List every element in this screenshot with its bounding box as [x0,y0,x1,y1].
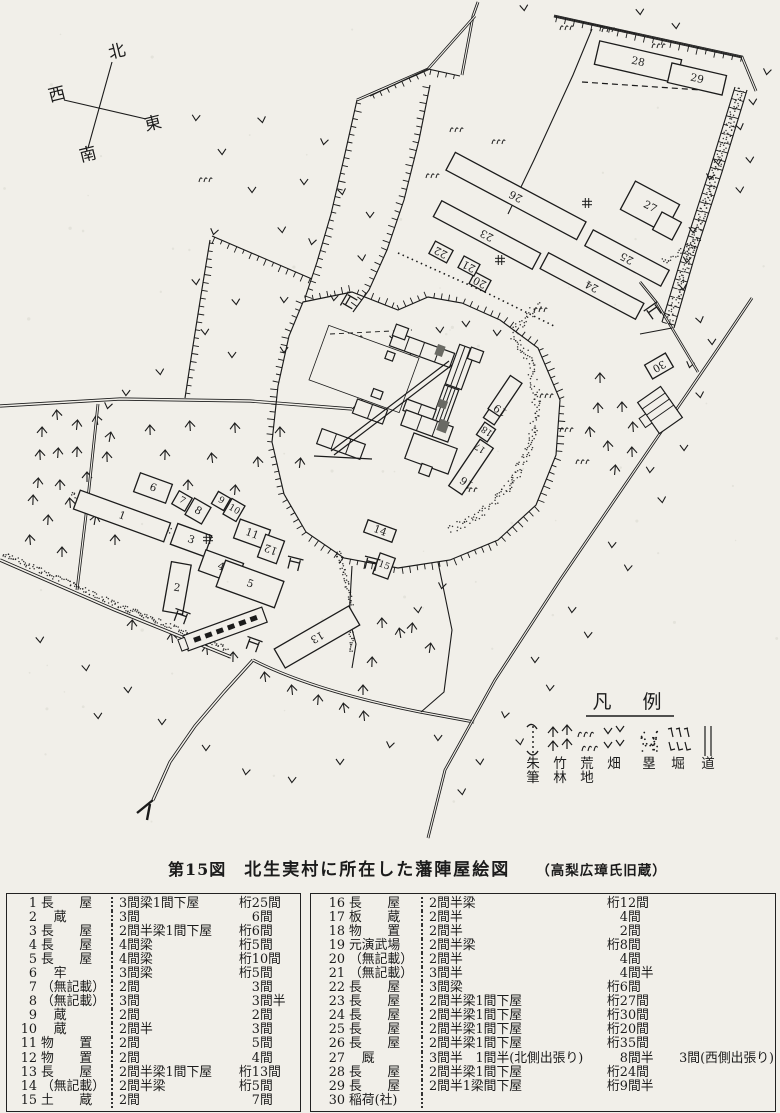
bamboo-mark [185,421,196,432]
cell-spec: 2間半梁1間下屋 [111,1066,239,1080]
cell-no: 4 [7,939,41,953]
cell-name: 長 屋 [349,995,421,1009]
field-mark [736,187,745,193]
table-row: 8（無記載）3間 3間半 [7,995,300,1009]
cell-name: 長 屋 [41,953,111,967]
cell-no: 14 [7,1080,41,1094]
field-mark [202,745,210,751]
cell-spec: 2間半梁1間下屋 [421,995,607,1009]
cell-size: 桁5間 [239,1080,300,1094]
bamboo-mark [424,642,435,653]
wasteland-mark [199,178,212,182]
bamboo-mark [617,402,627,412]
cell-no: 10 [7,1023,41,1037]
cell-no: 26 [311,1037,349,1051]
cell-size: 桁12間 [607,897,775,911]
cell-no: 9 [7,1009,41,1023]
cell-name: 長 屋 [349,1023,421,1037]
cell-spec: 2間半梁 [421,939,607,953]
field-mark [516,738,525,745]
cell-size: 桁6間 [239,925,300,939]
cell-no: 19 [311,939,349,953]
cell-name: 長 屋 [41,939,111,953]
gate-icon [285,556,303,572]
bamboo-mark [145,425,155,435]
field-mark [434,735,442,741]
bamboo-mark [72,420,83,431]
table-row: 10 蔵2間半 3間 [7,1023,300,1037]
cell-spec: 2間半梁 [421,897,607,911]
cell-name: 長 屋 [349,981,421,995]
wasteland-mark [652,44,665,48]
field-mark [749,99,757,105]
field-mark [192,115,200,121]
wasteland-mark [540,394,553,398]
cell-size: 4間 [607,953,775,967]
field-mark [624,565,633,571]
compass-label: 南 [77,143,98,167]
field-mark [288,777,296,783]
field-mark [568,607,576,613]
well-mark [495,255,505,265]
well-mark [582,198,592,208]
field-mark [358,255,367,262]
cell-no: 7 [7,981,41,995]
table-row: 21（無記載）3間半 4間半 [311,967,775,981]
table-row: 4長 屋4間梁桁5間 [7,939,300,953]
cell-size: 桁35間 [607,1037,775,1051]
cell-name: 蔵 [41,1009,111,1023]
bamboo-mark [57,547,67,557]
field-mark [414,607,423,613]
cell-spec: 3間梁 [111,967,239,981]
cell-spec: 3間半 1間半(北側出張り) [421,1052,607,1066]
field-mark [366,212,374,218]
legend-label: 林 [553,770,567,786]
cell-size [607,1094,775,1108]
cell-spec: 2間半 [421,925,607,939]
bamboo-mark [628,422,639,433]
figure-caption: 第15図北生実村に所在した藩陣屋絵図（高梨広璋氏旧蔵） [168,855,667,880]
cell-no: 5 [7,953,41,967]
cell-size: 桁5間 [239,939,300,953]
cell-no: 27 [311,1052,349,1066]
cell-spec: 2間 [111,1094,239,1108]
cell-no: 6 [7,967,41,981]
cell-size: 桁20間 [607,1023,775,1037]
bamboo-mark [230,485,241,496]
bamboo-mark [259,671,270,682]
cell-no: 18 [311,925,349,939]
cell-size: 8間半 3間(西側出張り) [607,1052,775,1066]
jinya-map: 1234567891011121314151617181920212223242… [0,0,780,848]
jinya-main-complex [309,324,484,476]
cell-no: 16 [311,897,349,911]
field-mark [210,228,219,235]
cell-spec: 2間半梁1間下屋 [421,1009,607,1023]
cell-size: 桁6間 [607,981,775,995]
legend-label: 道 [701,756,715,772]
field-mark [436,327,444,333]
cell-size: 桁30間 [607,1009,775,1023]
bamboo-mark [230,423,241,434]
table-row: 22長 屋3間梁桁6間 [311,981,775,995]
cell-size: 3間 [239,1023,300,1037]
cell-no: 3 [7,925,41,939]
bamboo-mark [313,695,324,706]
cell-no: 2 [7,911,41,925]
table-row: 29長 屋2間半1梁間下屋桁9間半 [311,1080,775,1094]
cell-size: 桁27間 [607,995,775,1009]
table-row: 27 厩3間半 1間半(北側出張り) 8間半 3間(西側出張り) [311,1052,775,1066]
bamboo-mark [593,403,603,413]
field-mark [680,445,688,451]
field-mark [708,339,716,345]
cell-size: 桁9間半 [607,1080,775,1094]
table-row: 3長 屋2間半梁1間下屋桁6間 [7,925,300,939]
field-mark [242,768,251,775]
bamboo-mark [37,427,47,437]
field-mark [122,390,130,396]
figure-number: 第15図 [168,860,226,879]
cell-spec: 2間半 [111,1023,239,1037]
bamboo-mark [359,711,370,722]
table-row: 16長 屋2間半梁桁12間 [311,897,775,911]
cell-spec: 2間半梁1間下屋 [421,1066,607,1080]
wasteland-mark [576,460,589,464]
bamboo-mark [183,480,193,490]
bamboo-mark [72,447,82,457]
field-mark [192,279,200,285]
field-mark [636,9,644,15]
cell-name: 厩 [349,1052,421,1066]
building-14: 14 [364,520,397,542]
field-mark [476,759,484,765]
wasteland-mark [492,140,505,144]
bamboo-mark [610,465,621,476]
cell-spec [421,1094,607,1108]
table-row: 5長 屋4間梁桁10間 [7,953,300,967]
cell-spec: 2間半梁1間下屋 [421,1023,607,1037]
cell-name: 蔵 [41,1023,111,1037]
scanned-page: 1234567891011121314151617181920212223242… [0,0,780,1113]
wasteland-mark [560,26,573,30]
legend-label: 堀 [671,756,685,772]
building-22: 22 [429,241,453,263]
figure-source: （高梨広璋氏旧蔵） [536,863,667,879]
field-mark [584,632,592,638]
field-mark [646,467,654,473]
field-mark [82,665,91,671]
field-mark [336,759,344,765]
cell-name: 長 屋 [349,1080,421,1094]
cell-spec: 2間 [111,1009,239,1023]
table-row: 26長 屋2間半梁1間下屋桁35間 [311,1037,775,1051]
table-row: 15土 蔵2間 7間 [7,1094,300,1108]
cell-spec: 4間梁 [111,939,239,953]
bamboo-mark [33,478,44,489]
cell-no: 13 [7,1066,41,1080]
wasteland-mark [426,174,439,178]
cell-name: （無記載） [349,967,421,981]
cell-name: 蔵 [41,911,111,925]
bamboo-mark [35,450,46,461]
legend-label: 筆 [526,770,540,786]
cell-size: 6間 [239,911,300,925]
cell-no: 8 [7,995,41,1009]
bamboo-mark [358,685,368,695]
field-mark [520,5,528,11]
bamboo-mark [275,427,285,437]
bamboo-mark [407,623,418,634]
cell-spec: 3間 [111,995,239,1009]
table-row: 9 蔵2間 2間 [7,1009,300,1023]
cell-name: 長 屋 [349,1066,421,1080]
cell-name: 長 屋 [41,925,111,939]
bamboo-mark [52,410,63,421]
cell-size: 4間半 [607,967,775,981]
field-mark [608,542,616,548]
field-mark [462,321,470,327]
cell-name: （無記載） [41,995,111,1009]
table-row: 28長 屋2間半梁1間下屋桁24間 [311,1066,775,1080]
field-mark [201,329,209,335]
bamboo-mark [377,618,387,628]
bamboo-mark [595,373,605,383]
cell-size: 桁5間 [239,967,300,981]
building-30: 30 [645,353,674,379]
cell-no: 21 [311,967,349,981]
cell-name: 物 置 [41,1037,111,1051]
compass-rose: 北西東南 [46,40,163,167]
bamboo-mark [55,480,65,490]
field-mark [218,149,226,155]
field-mark [36,637,44,643]
field-mark [746,157,754,163]
cell-size: 3間半 [239,995,300,1009]
field-mark [493,330,501,336]
cell-name: 長 屋 [349,897,421,911]
cell-size: 2間 [239,1009,300,1023]
bamboo-mark [287,685,298,696]
field-mark [94,713,102,719]
bamboo-mark [394,627,405,638]
building-table-left: 1長 屋3間梁1間下屋桁25間2 蔵3間 6間3長 屋2間半梁1間下屋桁6間4長… [6,893,301,1112]
bamboo-mark [584,426,595,437]
bamboo-mark [104,431,116,443]
cell-spec: 2間半梁1間下屋 [111,925,239,939]
cell-spec: 2間半 [421,911,607,925]
bamboo-mark [102,452,112,462]
cell-spec: 3間梁1間下屋 [111,897,239,911]
building-13: 13 [274,606,359,668]
building-25: 25 [585,230,669,286]
field-mark [300,179,308,185]
cell-name: 土 蔵 [41,1094,111,1108]
field-mark [672,23,680,29]
bamboo-mark [253,457,264,468]
cell-name: 物 置 [41,1052,111,1066]
cell-name: 板 蔵 [349,911,421,925]
table-row: 24長 屋2間半梁1間下屋桁30間 [311,1009,775,1023]
field-mark [763,68,772,75]
cell-no: 24 [311,1009,349,1023]
wasteland-mark [450,128,463,132]
cell-size: 桁13間 [239,1066,300,1080]
table-row: 2 蔵3間 6間 [7,911,300,925]
cell-size: 桁24間 [607,1066,775,1080]
field-mark [546,685,554,691]
bamboo-mark [110,535,120,545]
field-mark [158,719,166,725]
field-mark [124,687,132,693]
bamboo-mark [160,450,170,460]
legend-title: 凡 例 [592,691,667,713]
bamboo-mark [367,657,377,667]
field-mark [228,352,236,358]
cell-no: 25 [311,1023,349,1037]
field-mark [232,299,240,305]
cell-no: 22 [311,981,349,995]
field-mark [248,187,256,193]
cell-spec: 2間 [111,981,239,995]
cell-no: 17 [311,911,349,925]
compass-label: 北 [106,40,127,64]
bamboo-mark [43,515,54,526]
bamboo-mark [627,447,637,457]
cell-no: 15 [7,1094,41,1108]
table-row: 30稲荷(社) [311,1094,775,1108]
map-legend: 凡 例朱筆竹林荒地畑塁堀道 [526,691,715,786]
cell-spec: 2間 [111,1037,239,1051]
cell-spec: 2間 [111,1052,239,1066]
field-mark [386,741,395,748]
cell-size: 2間 [607,925,775,939]
table-row: 13長 屋2間半梁1間下屋桁13間 [7,1066,300,1080]
field-mark [501,711,510,718]
table-row: 1長 屋3間梁1間下屋桁25間 [7,897,300,911]
cell-no: 12 [7,1052,41,1066]
cell-spec: 2間半梁 [111,1080,239,1094]
field-mark [280,297,288,303]
cell-size: 4間 [607,911,775,925]
table-row: 11物 置2間 5間 [7,1037,300,1051]
bamboo-mark [25,535,36,546]
building-2: 2 [163,562,191,615]
field-mark [320,138,329,145]
legend-label: 地 [580,770,594,786]
field-mark [104,402,113,409]
bamboo-mark [294,457,305,468]
cell-spec: 3間 [111,911,239,925]
gate-icon [243,636,262,653]
building-19: 19 [488,376,525,419]
field-mark [258,116,267,123]
bamboo-mark [28,495,38,505]
table-row: 23長 屋2間半梁1間下屋桁27間 [311,995,775,1009]
cell-spec: 2間半梁1間下屋 [421,1037,607,1051]
cell-name: （無記載） [41,1080,111,1094]
cell-spec: 2間半1梁間下屋 [421,1080,607,1094]
field-mark [658,497,667,504]
compass-label: 東 [142,112,163,136]
bamboo-mark [603,441,614,452]
cell-no: 29 [311,1080,349,1094]
table-row: 17板 蔵2間半 4間 [311,911,775,925]
field-mark [156,369,165,375]
cell-size: 桁25間 [239,897,300,911]
cell-no: 1 [7,897,41,911]
table-row: 25長 屋2間半梁1間下屋桁20間 [311,1023,775,1037]
field-mark [531,657,539,663]
cell-name: 長 屋 [349,1037,421,1051]
cell-name: 長 屋 [41,897,111,911]
cell-spec: 4間梁 [111,953,239,967]
cell-spec: 2間半 [421,953,607,967]
legend-label: 塁 [642,756,656,772]
field-mark [458,789,467,796]
cell-no: 28 [311,1066,349,1080]
field-mark [695,316,704,323]
table-row: 14（無記載）2間半梁桁5間 [7,1080,300,1094]
cell-no: 23 [311,995,349,1009]
building-5: 5 [216,560,284,608]
bamboo-mark [127,620,138,631]
bamboo-mark [206,452,217,463]
shrine-building [631,386,682,438]
cell-name: 稲荷(社) [349,1094,421,1108]
compass-label: 西 [46,83,67,107]
bamboo-mark [53,448,64,459]
building-6: 6 [134,473,173,503]
cell-size: 4間 [239,1052,300,1066]
cell-no: 11 [7,1037,41,1051]
structures-layer [177,324,682,653]
cell-name: 長 屋 [41,1066,111,1080]
cell-size: 5間 [239,1037,300,1051]
cell-no: 30 [311,1094,349,1108]
cell-size: 7間 [239,1094,300,1108]
cell-spec: 3間半 [421,967,607,981]
cell-size: 桁8間 [607,939,775,953]
field-mark [308,238,317,245]
table-row: 12物 置2間 4間 [7,1052,300,1066]
bamboo-mark [338,702,349,713]
legend-label: 畑 [607,756,621,772]
cell-size: 桁10間 [239,953,300,967]
cell-no: 20 [311,953,349,967]
figure-title: 北生実村に所在した藩陣屋絵図 [244,860,510,880]
cell-name: 長 屋 [349,1009,421,1023]
cell-size: 3間 [239,981,300,995]
field-mark [696,391,705,398]
field-mark [278,227,287,233]
building-table-right: 16長 屋2間半梁桁12間17板 蔵2間半 4間18物 置2間半 2間19元演武… [310,893,776,1112]
cell-spec: 3間梁 [421,981,607,995]
